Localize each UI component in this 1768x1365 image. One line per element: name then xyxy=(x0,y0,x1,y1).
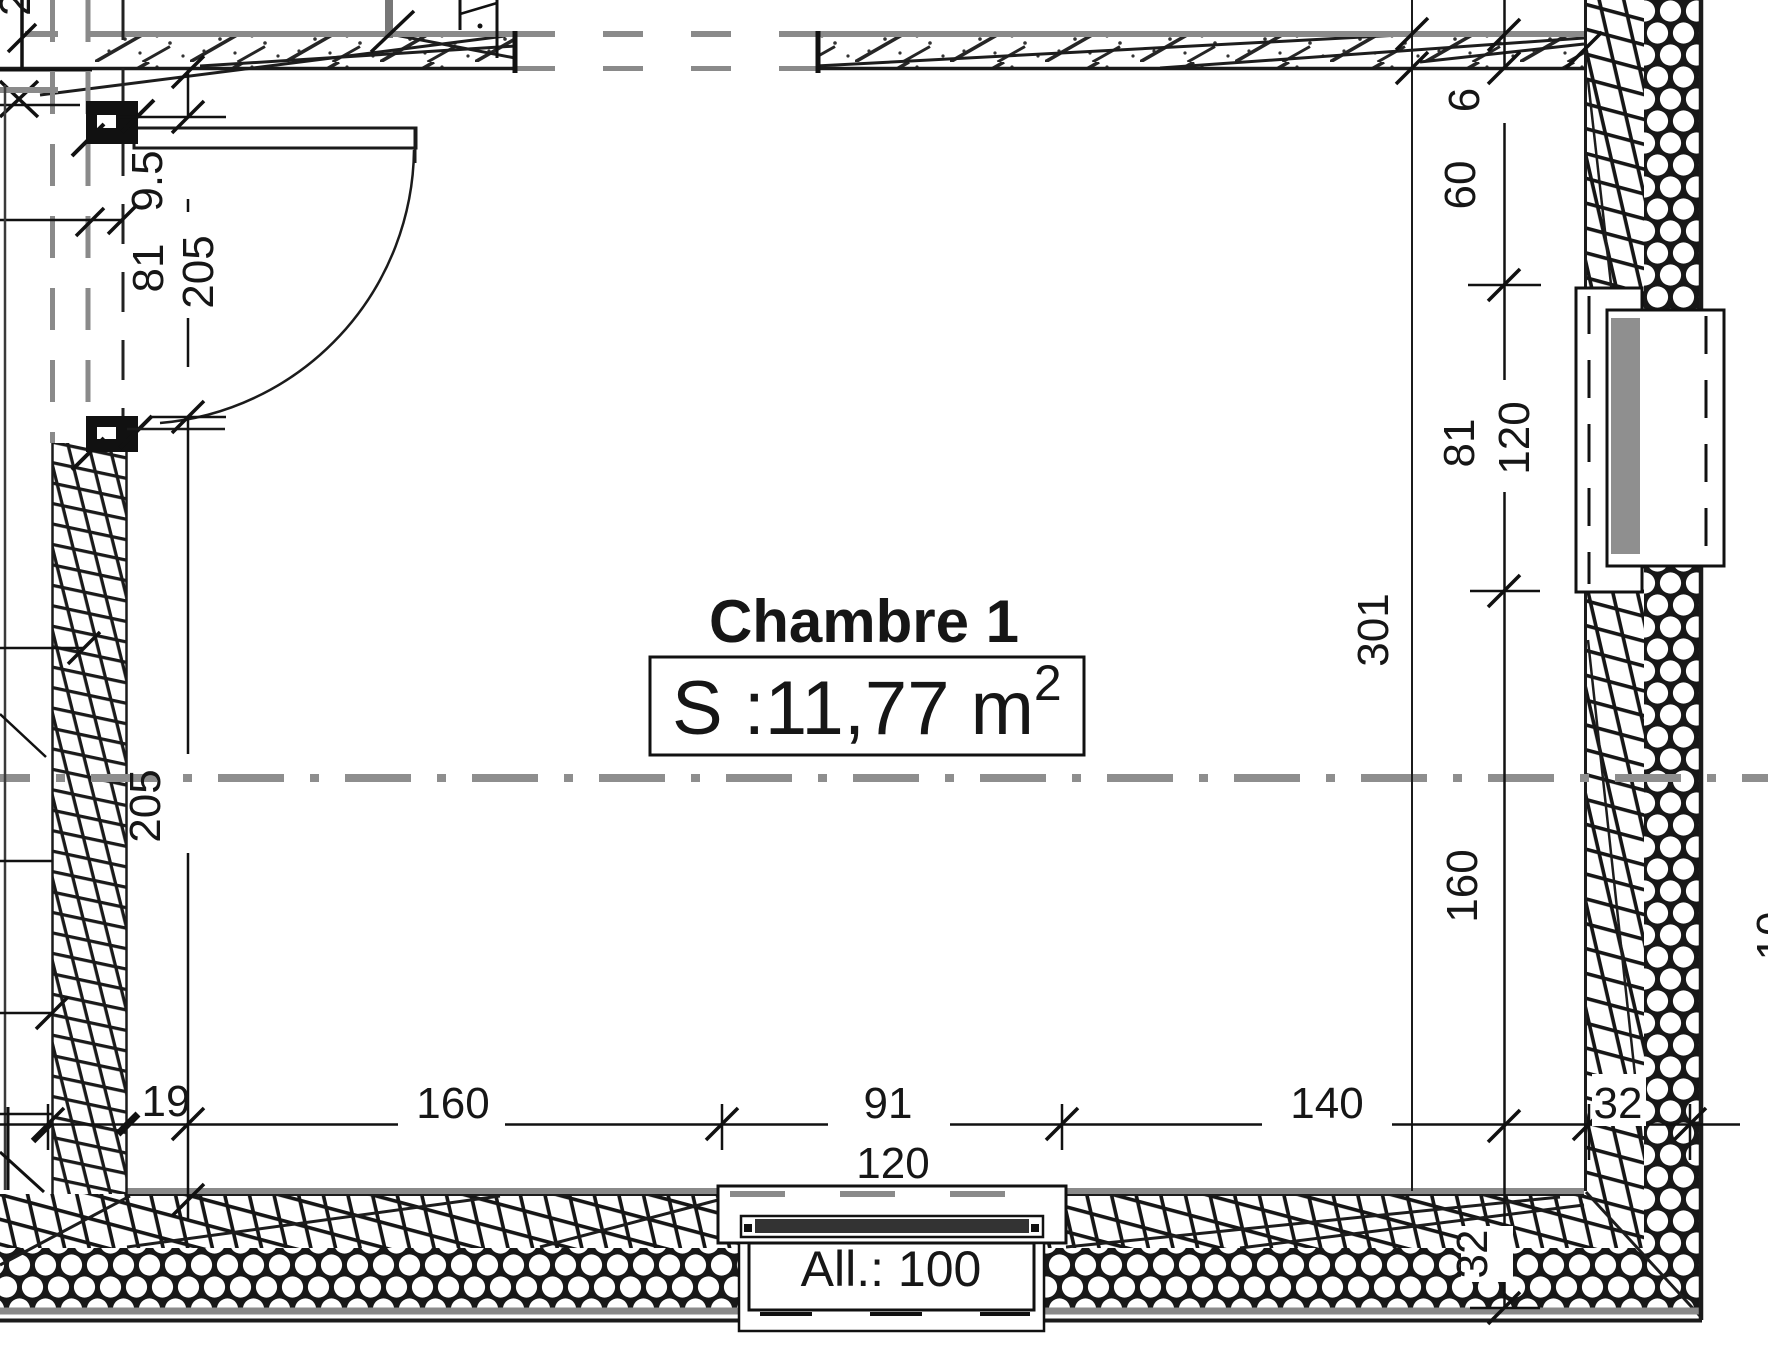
svg-text:2: 2 xyxy=(0,0,40,16)
svg-text:32: 32 xyxy=(1448,1230,1497,1279)
svg-text:S :11,77 m2: S :11,77 m2 xyxy=(672,655,1062,751)
svg-text:205: 205 xyxy=(174,235,223,308)
svg-text:91: 91 xyxy=(864,1079,913,1128)
svg-text:160: 160 xyxy=(1438,849,1487,922)
svg-text:32: 32 xyxy=(1594,1079,1643,1128)
svg-text:6: 6 xyxy=(1440,88,1489,112)
svg-text:10: 10 xyxy=(1748,912,1768,961)
svg-text:9.5: 9.5 xyxy=(123,150,172,211)
svg-text:All.: 100: All.: 100 xyxy=(801,1241,982,1297)
svg-text:301: 301 xyxy=(1349,593,1398,666)
svg-text:120: 120 xyxy=(1490,401,1539,474)
svg-text:205: 205 xyxy=(121,769,170,842)
svg-text:81: 81 xyxy=(124,244,173,293)
svg-text:160: 160 xyxy=(416,1079,489,1128)
svg-text:120: 120 xyxy=(856,1139,929,1188)
svg-text:60: 60 xyxy=(1436,161,1485,210)
svg-text:19: 19 xyxy=(142,1077,191,1126)
svg-text:140: 140 xyxy=(1290,1079,1363,1128)
svg-text:Chambre 1: Chambre 1 xyxy=(709,588,1019,655)
svg-text:81: 81 xyxy=(1435,419,1484,468)
